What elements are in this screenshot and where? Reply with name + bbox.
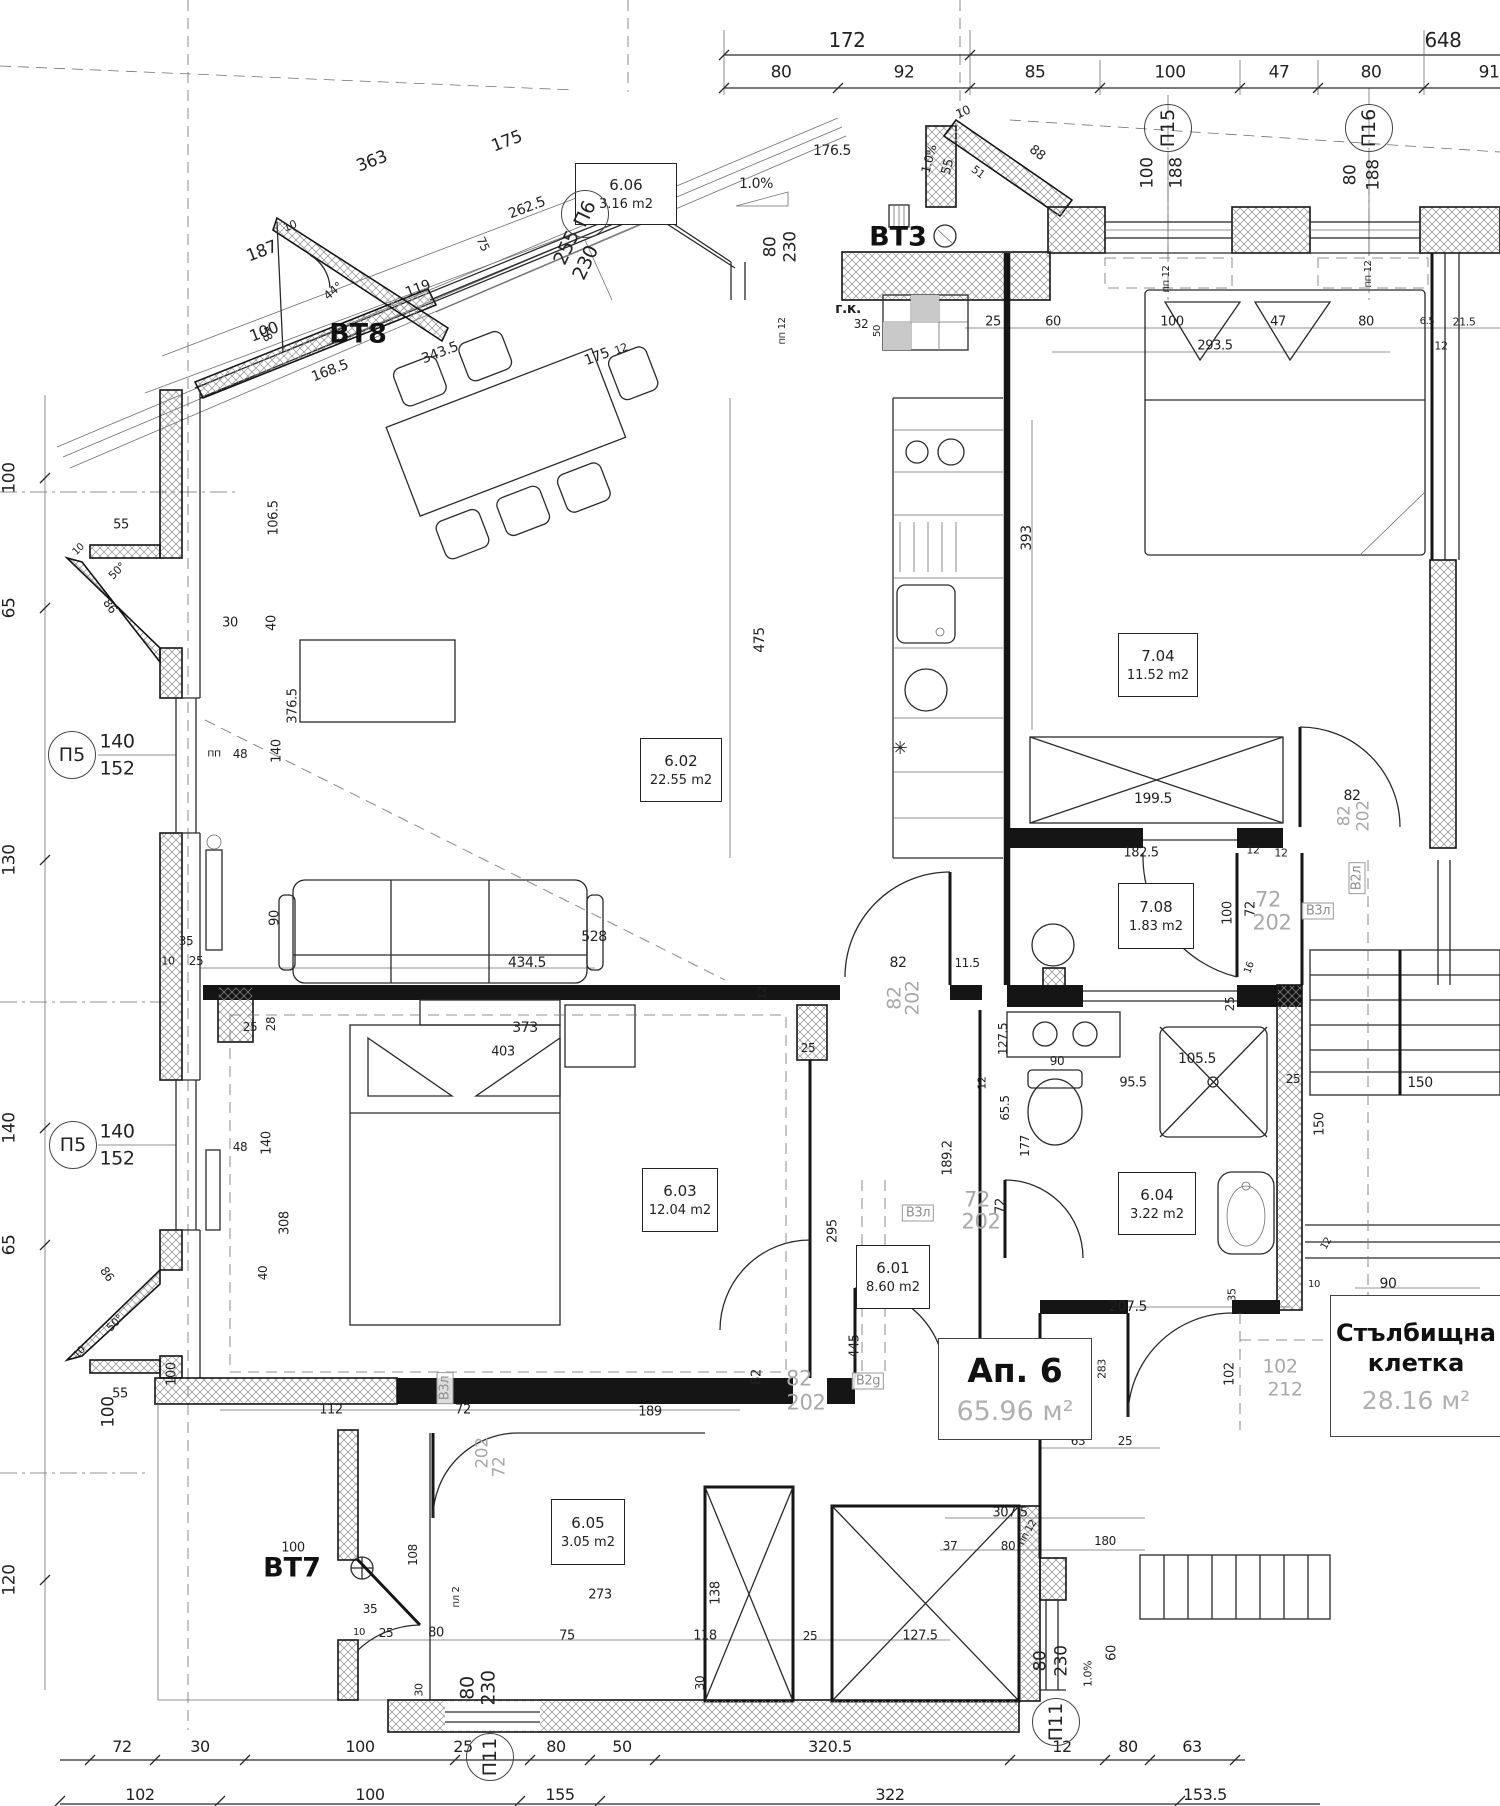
axis-bubble-П11: П11 bbox=[1032, 1698, 1080, 1746]
room-number: 6.01 bbox=[876, 1259, 909, 1277]
bedroom-603 bbox=[230, 1000, 827, 1378]
dimension-label: 273 bbox=[588, 1589, 612, 1602]
dimension-label: 82 bbox=[1337, 806, 1354, 827]
dimension-label: 102 bbox=[1262, 1358, 1297, 1377]
dimension-label: 393 bbox=[1020, 525, 1034, 551]
axis-bubble-label: П15 bbox=[1157, 109, 1179, 147]
dimension-label: 140 bbox=[99, 1123, 134, 1142]
dimension-label: 30 bbox=[694, 1676, 706, 1690]
room-label-6.04: 6.043.22 m2 bbox=[1118, 1172, 1196, 1235]
dimension-label: 40 bbox=[266, 615, 279, 631]
dimension-label: пл 2 bbox=[452, 1587, 462, 1608]
dimension-label: 308 bbox=[279, 1211, 292, 1235]
terrace-bt3 bbox=[731, 120, 1072, 300]
room-area: 12.04 m2 bbox=[649, 1203, 711, 1218]
dimension-label: 72 bbox=[964, 1190, 990, 1211]
dimension-label: 202 bbox=[1356, 800, 1373, 831]
dimension-label: 100 bbox=[1154, 65, 1185, 82]
balcony-label-BT8: BT8 bbox=[329, 319, 387, 350]
axis-bubble-П15: П15 bbox=[1144, 104, 1192, 152]
dimension-label: 230 bbox=[1054, 1645, 1071, 1676]
dimension-label: 10 bbox=[161, 956, 174, 967]
dimension-label: 82 bbox=[751, 1369, 764, 1385]
dimension-label: 25 bbox=[379, 1627, 393, 1639]
dimension-label: 50 bbox=[612, 1739, 632, 1755]
dimension-label: 202 bbox=[904, 980, 923, 1015]
dimension-label: 112 bbox=[319, 1404, 343, 1417]
axis-bubble-label: П5 bbox=[60, 1134, 86, 1156]
dimension-label: 92 bbox=[894, 65, 915, 82]
room-number: 6.03 bbox=[663, 1182, 696, 1200]
dimension-label: 21.5 bbox=[1453, 317, 1476, 328]
dimension-label: 376.5 bbox=[287, 688, 300, 723]
dimension-label: 28 bbox=[265, 1017, 277, 1031]
dimension-label: 10 bbox=[1308, 1280, 1320, 1290]
dimension-label: 63 bbox=[1182, 1739, 1202, 1755]
stairwell bbox=[1040, 860, 1500, 1690]
dimension-label: 25 bbox=[1118, 1435, 1132, 1447]
dimension-label: 140 bbox=[261, 1131, 274, 1155]
axis-bubble-label: П11 bbox=[1045, 1703, 1067, 1741]
axis-bubble-label: П6 bbox=[569, 197, 600, 230]
dimension-label: 475 bbox=[753, 627, 767, 653]
dimension-label: 293.5 bbox=[1197, 340, 1232, 353]
room-label-6.05: 6.053.05 m2 bbox=[551, 1499, 625, 1565]
dimension-label: 105.5 bbox=[1178, 1052, 1216, 1066]
dimension-label: 130 bbox=[2, 844, 19, 875]
dimension-label: 82 bbox=[889, 956, 906, 970]
dimension-label: 283 bbox=[1097, 1359, 1108, 1379]
room-area: 11.52 m2 bbox=[1127, 668, 1189, 683]
dimension-label: 106.5 bbox=[268, 500, 281, 535]
dimension-label: 150 bbox=[1314, 1112, 1327, 1136]
dimension-label: 100 bbox=[1140, 157, 1157, 188]
dimension-label: 12 bbox=[1274, 848, 1287, 859]
mid-wall bbox=[203, 872, 982, 1042]
dimension-label: 11.5 bbox=[954, 957, 979, 969]
dimension-label: 30 bbox=[414, 1683, 425, 1696]
dimension-label: 55 bbox=[112, 1388, 128, 1401]
axis-bubble-П5: П5 bbox=[49, 1121, 97, 1169]
room-area: 8.60 m2 bbox=[866, 1280, 920, 1295]
dimension-label: 72 bbox=[995, 1198, 1008, 1214]
dimension-label: 100 bbox=[355, 1787, 384, 1803]
dimension-label: 55 bbox=[113, 519, 129, 532]
dimension-label: 35 bbox=[179, 935, 193, 947]
room-area: 3.05 m2 bbox=[561, 1535, 615, 1550]
dimension-label: 102 bbox=[1224, 1362, 1237, 1386]
dimension-label: 189 bbox=[638, 1406, 662, 1419]
dimension-label: 320.5 bbox=[808, 1739, 852, 1755]
dimension-label: пп 12 bbox=[1162, 266, 1172, 293]
dimension-label: 80 bbox=[1118, 1739, 1138, 1755]
dimension-label: 102 bbox=[125, 1787, 154, 1803]
dimension-label: 12 bbox=[1434, 341, 1447, 352]
dimension-label: 648 bbox=[1425, 30, 1462, 50]
room-number: 7.08 bbox=[1139, 898, 1172, 916]
dimension-label: 150 bbox=[1407, 1076, 1433, 1090]
room-label-6.01: 6.018.60 m2 bbox=[856, 1245, 930, 1309]
dimension-label: 188 bbox=[1366, 159, 1383, 190]
axis-bubble-П11: П11 bbox=[466, 1733, 514, 1781]
room-label-6.03: 6.0312.04 m2 bbox=[642, 1168, 718, 1232]
dimension-label: 1.0% bbox=[1083, 1661, 1094, 1687]
dimension-label: 199.5 bbox=[1134, 792, 1172, 806]
dimension-label: 12 bbox=[1246, 845, 1259, 856]
dimension-label: 80 bbox=[1033, 1651, 1050, 1672]
room-number: 6.02 bbox=[664, 752, 697, 770]
balcony-label-BT3: BT3 bbox=[869, 222, 927, 253]
dimension-label: 180 bbox=[1094, 1535, 1116, 1547]
dimension-label: 100 bbox=[1222, 901, 1235, 925]
dimension-label: 140 bbox=[271, 739, 284, 763]
dimension-label: 25 bbox=[803, 1630, 817, 1642]
dimension-label: 30 bbox=[190, 1739, 210, 1755]
stairwell-name-line2: клетка bbox=[1368, 1348, 1465, 1378]
axis-bubble-label: П16 bbox=[1358, 109, 1380, 147]
dimension-label: 40 bbox=[257, 1266, 269, 1280]
dimension-label: 85 bbox=[1025, 65, 1046, 82]
dimension-label: 80 bbox=[459, 1676, 478, 1699]
dimension-label: 177 bbox=[1019, 1135, 1031, 1157]
dimension-label: 138 bbox=[710, 1581, 723, 1605]
dimension-label: 100 bbox=[345, 1739, 374, 1755]
room-area: 3.22 m2 bbox=[1130, 1207, 1184, 1222]
dimension-label: 140 bbox=[99, 733, 134, 752]
apartment-name: Ап. 6 bbox=[967, 1351, 1062, 1390]
dimension-label: ✳ bbox=[893, 740, 908, 758]
stairwell-name-line1: Стълбищна bbox=[1336, 1318, 1496, 1348]
dimension-label: 72 bbox=[455, 1404, 471, 1417]
dimension-label: пп bbox=[207, 748, 221, 759]
room-label-7.04: 7.0411.52 m2 bbox=[1118, 633, 1198, 697]
dimension-label: 118 bbox=[693, 1630, 717, 1643]
dimension-label: 100 bbox=[166, 1362, 179, 1386]
dimension-label: 172 bbox=[829, 30, 866, 50]
dimension-label: 47 bbox=[1269, 65, 1290, 82]
dimension-label: 48 bbox=[233, 1141, 247, 1153]
room-label-7.08: 7.081.83 m2 bbox=[1118, 883, 1194, 949]
balcony-label-BT7: BT7 bbox=[263, 1553, 321, 1584]
dimension-label: 80 bbox=[546, 1739, 566, 1755]
room-label-6.02: 6.0222.55 m2 bbox=[640, 738, 722, 802]
axis-bubble-label: П5 bbox=[59, 744, 85, 766]
left-wall bbox=[67, 390, 222, 1378]
stairwell-stamp: Стълбищна клетка 28.16 м² bbox=[1330, 1295, 1500, 1437]
dimension-label: 202 bbox=[1253, 913, 1292, 934]
dimension-label: 55 bbox=[940, 158, 957, 177]
dimension-label: 32 bbox=[854, 318, 868, 330]
opening-code-label: B3л bbox=[437, 1372, 454, 1404]
dimension-label: 65 bbox=[2, 598, 19, 619]
dimension-label: 25 bbox=[1286, 1073, 1300, 1085]
dimension-label: 153.5 bbox=[1183, 1787, 1227, 1803]
room-number: 7.04 bbox=[1141, 647, 1174, 665]
dimension-label: 202 bbox=[962, 1212, 1001, 1233]
dimension-label: 12 bbox=[977, 1076, 988, 1089]
axis-bubble-label: П11 bbox=[479, 1738, 501, 1776]
axis-lines bbox=[0, 0, 1500, 1730]
dimension-label: 445 bbox=[849, 1334, 862, 1358]
dimension-label: 295 bbox=[827, 1219, 840, 1243]
dimension-label: 65.5 bbox=[999, 1095, 1011, 1120]
dimension-label: 65 bbox=[2, 1235, 19, 1256]
dimension-label: пп 12 bbox=[1364, 261, 1374, 288]
opening-code-label: B2л bbox=[1349, 862, 1366, 894]
dimension-label: 322 bbox=[875, 1787, 904, 1803]
dimension-label: 72 bbox=[112, 1739, 132, 1755]
room-area: 1.83 m2 bbox=[1129, 919, 1183, 934]
dimension-label: 230 bbox=[480, 1670, 499, 1705]
dimension-label: 230 bbox=[783, 231, 800, 262]
dimension-label: 60 bbox=[1106, 1645, 1119, 1661]
dimension-label: 12 bbox=[757, 986, 768, 999]
apartment-stamp: Ап. 6 65.96 м² bbox=[938, 1338, 1092, 1440]
dimension-label: 155 bbox=[545, 1787, 574, 1803]
dimension-label: 72 bbox=[1255, 890, 1281, 911]
dimension-label: 50 bbox=[873, 325, 883, 337]
dimension-label: 95.5 bbox=[1119, 1077, 1146, 1090]
dimension-label: 307.5 bbox=[992, 1507, 1027, 1520]
dimension-label: 35 bbox=[1227, 1288, 1238, 1301]
room-number: 6.06 bbox=[609, 176, 642, 194]
opening-code-label: B3л bbox=[1302, 903, 1334, 920]
apartment-area: 65.96 м² bbox=[956, 1396, 1073, 1427]
opening-code-label: B2g bbox=[852, 1373, 884, 1390]
dimension-label: 176.5 bbox=[813, 144, 851, 158]
dimension-label: 47 bbox=[1270, 316, 1286, 329]
room-number: 6.05 bbox=[571, 1514, 604, 1532]
dimension-label: 48 bbox=[233, 748, 247, 760]
dimension-label: 25 bbox=[243, 1021, 257, 1033]
axis-bubble-П5: П5 bbox=[48, 731, 96, 779]
dimension-label: 10 bbox=[353, 1628, 365, 1638]
dimension-label: 75 bbox=[559, 1630, 575, 1643]
dimension-label: 25 bbox=[985, 316, 1001, 329]
dimension-label: 80 bbox=[763, 237, 780, 258]
dimension-label: 373 bbox=[512, 1021, 538, 1035]
dimension-label: 90 bbox=[1379, 1277, 1396, 1291]
axis-bubble-П16: П16 bbox=[1345, 104, 1393, 152]
stairwell-area: 28.16 м² bbox=[1362, 1386, 1470, 1415]
dimension-label: 80 bbox=[771, 65, 792, 82]
dimension-label: 80 bbox=[1343, 165, 1360, 186]
opening-code-label: B3л bbox=[902, 1205, 934, 1222]
dimension-label: 100 bbox=[2, 462, 19, 493]
dimension-label: 91 bbox=[1479, 65, 1500, 82]
dimension-label: 30 bbox=[222, 617, 238, 630]
dimension-label: 528 bbox=[581, 930, 607, 944]
bedroom-704 bbox=[1007, 253, 1459, 985]
dimension-label: 127.5 bbox=[902, 1630, 937, 1643]
dimension-label: 25 bbox=[189, 955, 203, 967]
dimension-label: 35 bbox=[363, 1603, 377, 1615]
dimension-label: 212 bbox=[1267, 1381, 1302, 1400]
living-room bbox=[205, 283, 725, 983]
dimension-label: 127.5 bbox=[997, 1023, 1009, 1055]
dimension-label: 434.5 bbox=[508, 956, 546, 970]
dimension-label: 72 bbox=[492, 1457, 509, 1478]
floor-plan-page: .w{stroke:#151515;stroke-width:6.5;fill:… bbox=[0, 0, 1500, 1806]
dimension-label: 152 bbox=[99, 1150, 134, 1169]
dimension-label: 207.5 bbox=[1109, 1300, 1147, 1314]
dimension-label: 90 bbox=[269, 910, 282, 926]
dimension-label: пп 12 bbox=[778, 318, 788, 345]
dimension-label: 403 bbox=[491, 1046, 515, 1059]
dimension-label: 152 bbox=[99, 760, 134, 779]
dimension-label: г.к. bbox=[835, 302, 861, 316]
dimension-label: 189.2 bbox=[942, 1140, 955, 1175]
dimension-label: 25 bbox=[801, 1042, 815, 1054]
dimension-label: 140 bbox=[2, 1112, 19, 1143]
axis-bubble-П6: П6 bbox=[561, 190, 609, 238]
kitchen bbox=[883, 253, 1007, 858]
dimension-label: 80 bbox=[428, 1627, 444, 1640]
dimension-label: 37 bbox=[943, 1540, 957, 1552]
dimension-label: 182.5 bbox=[1123, 847, 1158, 860]
dimension-label: 108 bbox=[407, 1544, 419, 1566]
room-number: 6.04 bbox=[1140, 1186, 1173, 1204]
dimension-label: 100 bbox=[1160, 316, 1184, 329]
dimension-label: 25 bbox=[1224, 997, 1236, 1011]
room-area: 22.55 m2 bbox=[650, 773, 712, 788]
dimension-label: 1.0% bbox=[739, 177, 773, 191]
dimension-label: 80 bbox=[1358, 316, 1374, 329]
dimension-label: 188 bbox=[1169, 157, 1186, 188]
dimension-label: 90 bbox=[1050, 1055, 1064, 1067]
dimension-label: 82 bbox=[786, 1369, 812, 1390]
dimension-label: 60 bbox=[1045, 316, 1061, 329]
dimension-label: 80 bbox=[1001, 1540, 1015, 1552]
dimension-label: 80 bbox=[1361, 65, 1382, 82]
dimension-label: 6.5 bbox=[1420, 317, 1435, 327]
dimension-label: 120 bbox=[2, 1564, 19, 1595]
dimension-label: 202 bbox=[787, 1393, 826, 1414]
